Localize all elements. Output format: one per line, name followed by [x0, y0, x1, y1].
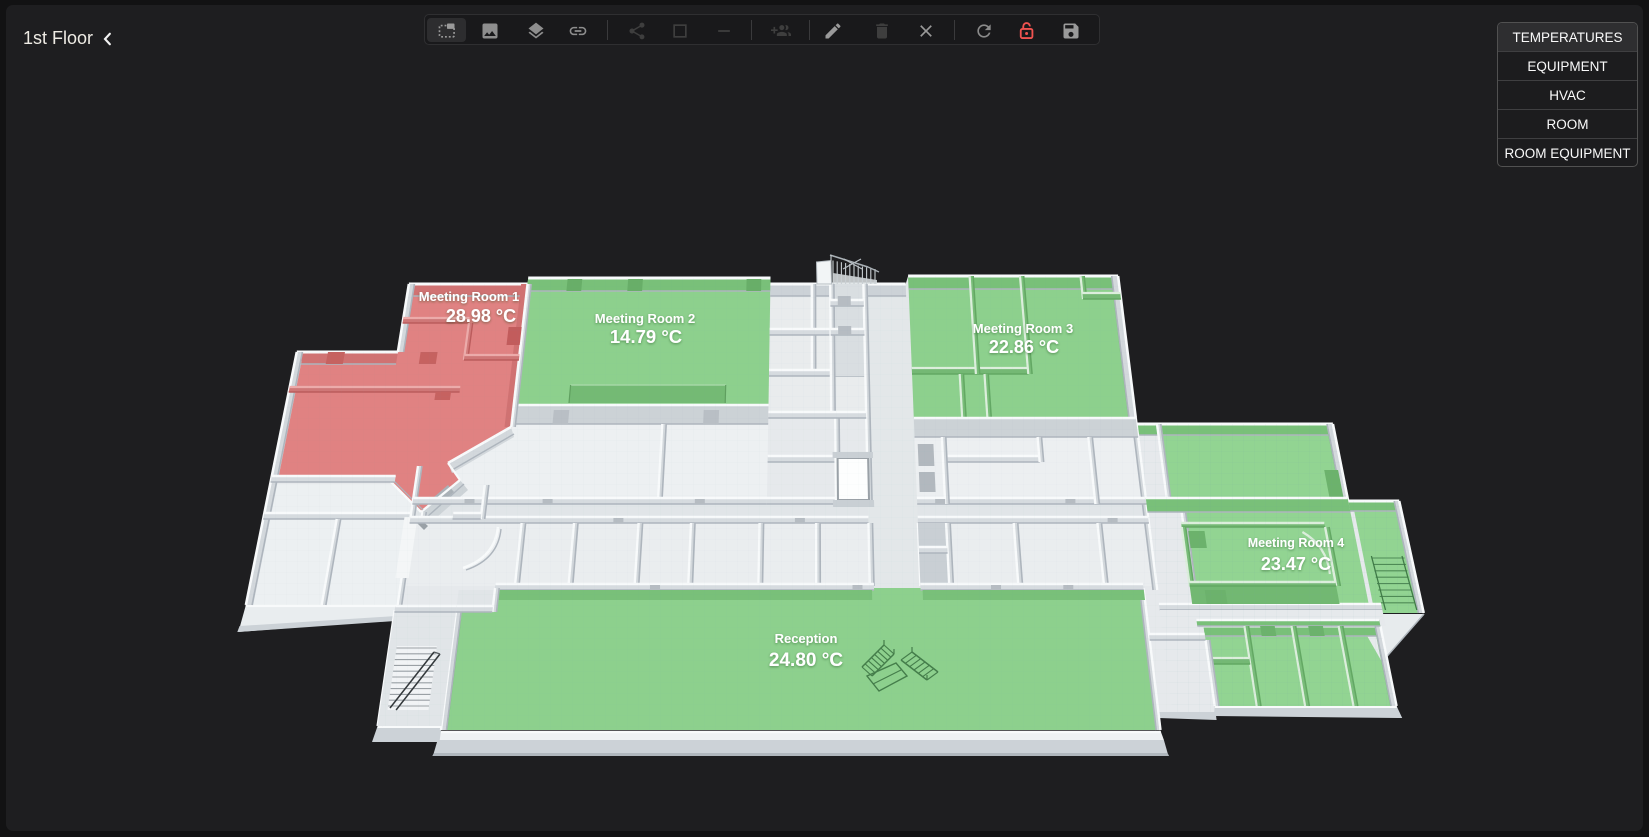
svg-text:28.98 °C: 28.98 °C — [446, 306, 516, 326]
svg-text:Meeting Room 4: Meeting Room 4 — [1248, 536, 1345, 550]
svg-text:Meeting Room 2: Meeting Room 2 — [595, 311, 695, 326]
svg-text:Meeting Room 1: Meeting Room 1 — [419, 289, 519, 304]
svg-text:14.79 °C: 14.79 °C — [610, 326, 682, 347]
svg-text:24.80 °C: 24.80 °C — [769, 650, 843, 671]
svg-text:Meeting Room 3: Meeting Room 3 — [973, 321, 1073, 336]
svg-text:22.86 °C: 22.86 °C — [989, 337, 1059, 357]
svg-text:Reception: Reception — [775, 631, 838, 646]
svg-text:23.47 °C: 23.47 °C — [1261, 554, 1331, 574]
